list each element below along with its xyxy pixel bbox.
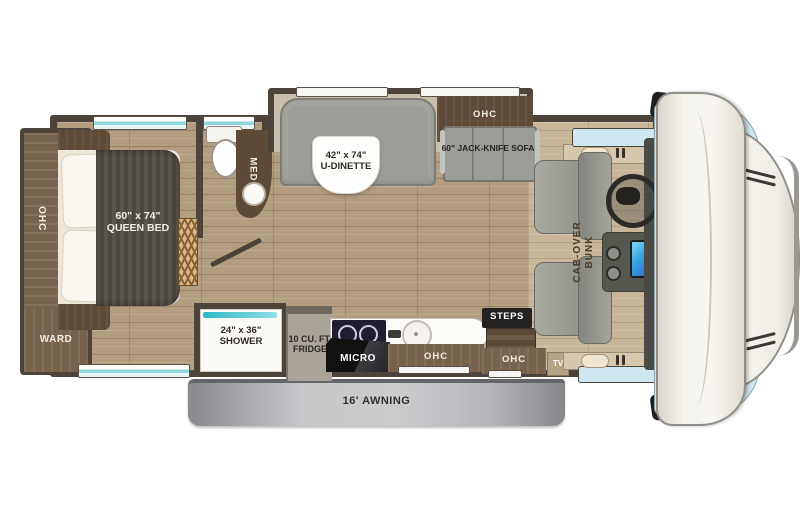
dash-knob [606,246,621,261]
cab-over-nose [656,92,746,426]
bath-sink [242,182,266,206]
kitchen-ohc-label: OHC [388,352,484,363]
entry-ohc-label: OHC [482,355,546,366]
jack-knife-sofa: 60" JACK-KNIFE SOFA [443,126,537,182]
microwave: MICRO [326,338,390,372]
door-hinge [622,148,625,158]
sink-drain [414,332,418,336]
dinette-table: 42" x 74" U-DINETTE [312,136,380,194]
entry-window-strip [488,370,522,378]
dash-knob [606,266,621,281]
sofa-label: 60" JACK-KNIFE SOFA [423,144,553,154]
shower-name-text: SHOWER [201,337,281,348]
nose-contour-line [680,112,712,406]
shower-label: 24" x 36" SHOWER [201,326,281,348]
kitchen-window-strip [398,366,470,374]
bunk-line2-text: BUNK [584,197,596,307]
shower-glass [203,312,277,318]
bedroom-ohc-label: OHC [35,180,47,258]
dinette-name-text: U-DINETTE [305,162,387,173]
rv-floorplan: 16' AWNING OHC WARD 60" x 74" QUEEN BED … [0,0,800,526]
fridge: 10 CU. FT. FRIDGE [286,306,332,381]
sofa-ohc-label: OHC [437,110,533,121]
dinette-label: 42" x 74" U-DINETTE [305,151,387,173]
steps-label: STEPS [482,312,532,323]
hood-chrome-trim [778,156,799,356]
queen-bed-mattress: 60" x 74" QUEEN BED [96,150,180,306]
slideout-window-left [296,87,388,97]
awning-bar: 16' AWNING [188,379,565,426]
shower-pan: 24" x 36" SHOWER [200,309,282,372]
bed-corner-cabinet-bottom [58,302,110,330]
bedroom-window-bottom [78,364,190,378]
steering-hub [616,187,640,205]
door-hinge [622,355,625,365]
steps-sign: STEPS [482,308,532,328]
steering-wheel [606,174,660,228]
faucet [388,330,401,338]
wardrobe-label: WARD [24,334,88,346]
accordion-door [178,218,198,286]
wiper-blade [746,340,776,350]
bedroom-window-top [93,116,187,130]
door-hinge [616,355,619,365]
bunk-line1-text: CAB-OVER [572,197,584,307]
micro-label: MICRO [326,353,390,365]
passenger-door-handle [581,354,609,368]
bedroom-ohc-cabinet: OHC [24,133,58,309]
door-hinge [616,148,619,158]
awning-label: 16' AWNING [188,395,565,408]
